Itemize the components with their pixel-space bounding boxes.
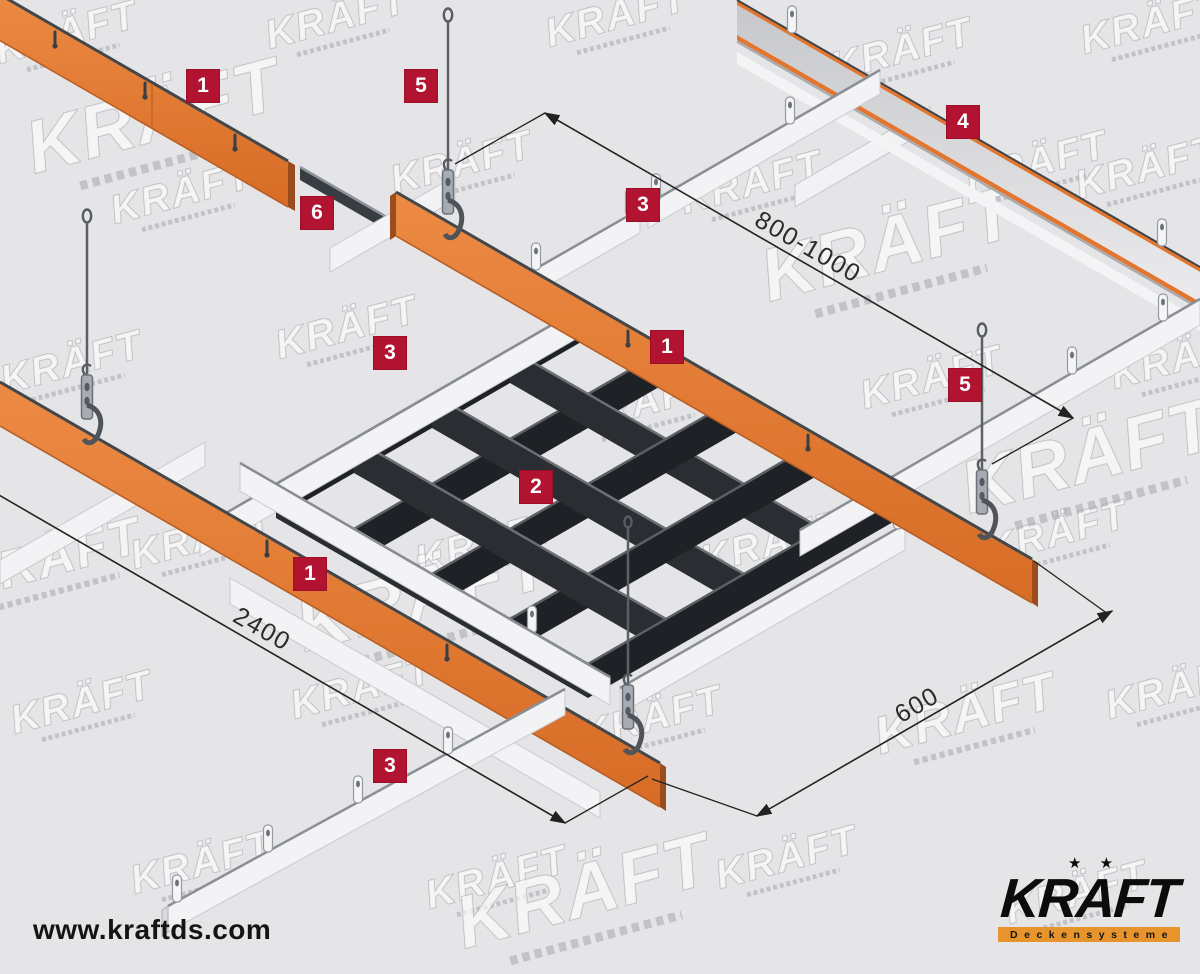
hook-tab-icon bbox=[788, 6, 797, 33]
callout-5-top: 5 bbox=[404, 69, 438, 103]
callout-1-bottom-left: 1 bbox=[293, 557, 327, 591]
hook-tab-icon bbox=[1159, 294, 1168, 321]
callout-2-grid: 2 bbox=[519, 470, 553, 504]
website-url: www.kraftds.com bbox=[33, 914, 271, 946]
callout-5-right: 5 bbox=[948, 368, 982, 402]
hook-tab-icon bbox=[786, 97, 795, 124]
callout-6-connector: 6 bbox=[300, 196, 334, 230]
hook-tab-icon bbox=[354, 776, 363, 803]
hook-tab-icon bbox=[1068, 347, 1077, 374]
logo-tagline: Deckensysteme bbox=[998, 927, 1180, 942]
hook-tab-icon bbox=[532, 243, 541, 270]
callout-4-wall-rail: 4 bbox=[946, 105, 980, 139]
callout-1-top-left: 1 bbox=[186, 69, 220, 103]
logo-brand-text: KRAFT bbox=[996, 873, 1182, 924]
callout-1-middle: 1 bbox=[650, 330, 684, 364]
kraft-logo: ★ ★ KRAFT Deckensysteme bbox=[998, 857, 1180, 942]
isometric-ceiling-diagram: KRÄFTKRÄFTKRÄFTKRÄFTKRÄFTKRÄFTKRÄFTKRÄFT… bbox=[0, 0, 1200, 974]
hook-tab-icon bbox=[173, 875, 182, 902]
hook-tab-icon bbox=[1158, 219, 1167, 246]
hook-tab-icon bbox=[444, 727, 453, 754]
hook-tab-icon bbox=[264, 825, 273, 852]
callout-3-left: 3 bbox=[373, 336, 407, 370]
callout-3-bottom: 3 bbox=[373, 749, 407, 783]
page: KRÄFTKRÄFTKRÄFTKRÄFTKRÄFTKRÄFTKRÄFTKRÄFT… bbox=[0, 0, 1200, 974]
callout-3-top: 3 bbox=[626, 188, 660, 222]
